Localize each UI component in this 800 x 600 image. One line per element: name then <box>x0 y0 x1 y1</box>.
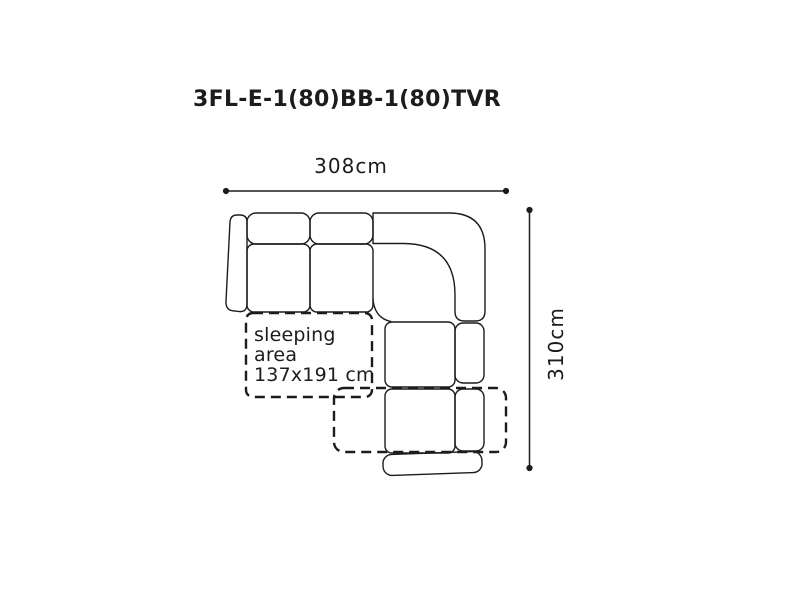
backrest-cushion-1 <box>247 213 310 244</box>
right-wing-back-2 <box>455 389 484 451</box>
right-wing-seat-1 <box>385 322 455 387</box>
width-dimension-dot-right <box>503 188 509 194</box>
height-dimension-dot-top <box>526 207 532 213</box>
height-dimension-dot-bottom <box>526 465 532 471</box>
width-dimension-dot-left <box>223 188 229 194</box>
right-wing-back-1 <box>455 323 484 383</box>
height-dimension-line <box>526 207 532 471</box>
corner-seat-join-arc <box>373 299 391 322</box>
product-title: 3FL-E-1(80)BB-1(80)TVR <box>193 87 501 112</box>
sleeping-area-label-line1: sleeping <box>254 325 375 345</box>
width-dimension-line <box>223 188 509 194</box>
width-dimension-label: 308cm <box>314 154 388 178</box>
right-wing-seat-2 <box>385 389 455 453</box>
sleeping-area-label-line3: 137x191 cm <box>254 365 375 385</box>
seat-cushion-2 <box>310 244 373 312</box>
height-dimension-label: 310cm <box>544 307 568 381</box>
sleeping-area-label: sleeping area 137x191 cm <box>254 325 375 385</box>
bottom-armrest-shape <box>383 451 483 475</box>
seat-cushion-1 <box>247 244 310 312</box>
left-armrest-shape <box>226 215 247 312</box>
sleeping-area-label-line2: area <box>254 345 375 365</box>
backrest-cushion-2 <box>310 213 373 244</box>
corner-section-shape <box>373 213 485 321</box>
sofa-dimension-diagram: 3FL-E-1(80)BB-1(80)TVR 308cm 310cm sleep… <box>0 0 800 600</box>
